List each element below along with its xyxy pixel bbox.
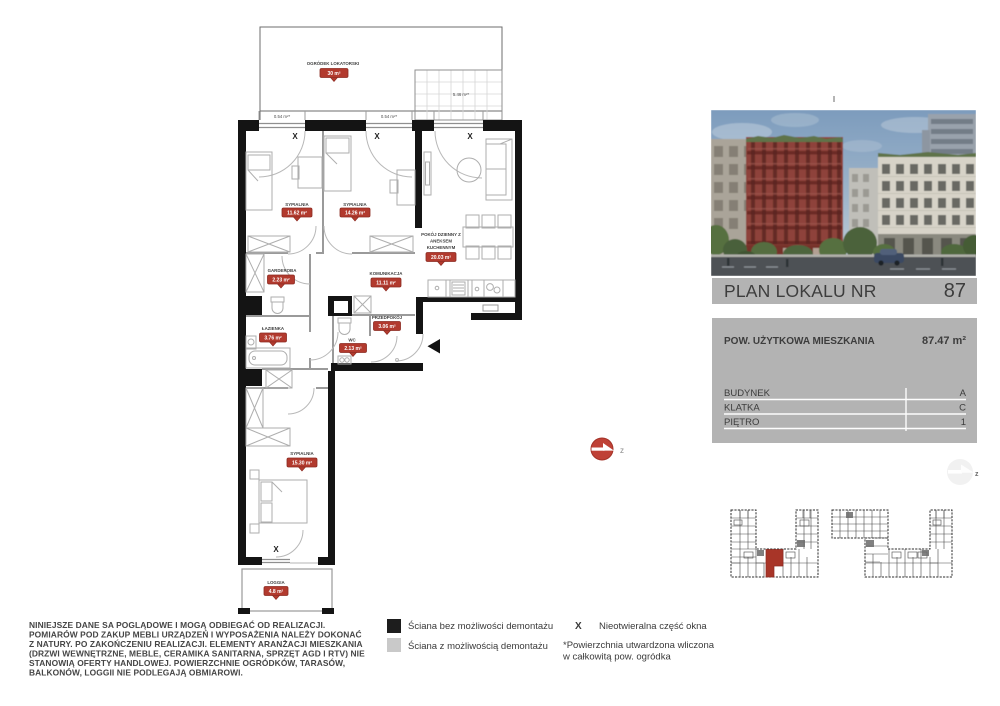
svg-text:SYPIALNIA: SYPIALNIA [343, 202, 367, 207]
svg-text:X: X [273, 545, 279, 554]
svg-text:BUDYNEK: BUDYNEK [724, 388, 771, 399]
svg-text:2.13 m²: 2.13 m² [344, 346, 362, 352]
svg-text:1: 1 [961, 417, 966, 428]
svg-text:2.23 m²: 2.23 m² [272, 278, 290, 284]
svg-text:20.03 m²: 20.03 m² [431, 255, 451, 261]
svg-text:5.46 m²*: 5.46 m²* [453, 92, 470, 97]
svg-text:14.26 m²: 14.26 m² [345, 211, 365, 217]
svg-text:ANEKSEM: ANEKSEM [430, 239, 452, 244]
svg-text:Ściana bez możliwości demontaż: Ściana bez możliwości demontażu [408, 620, 553, 632]
svg-text:KUCHENNYM: KUCHENNYM [427, 245, 456, 250]
svg-text:X: X [467, 132, 473, 141]
svg-text:KOMUNIKACJA: KOMUNIKACJA [370, 271, 404, 276]
svg-text:11.62 m²: 11.62 m² [287, 211, 307, 217]
svg-text:30 m²: 30 m² [327, 71, 340, 77]
svg-text:WC: WC [348, 338, 356, 343]
svg-text:SYPIALNIA: SYPIALNIA [290, 451, 314, 456]
svg-text:X: X [575, 621, 582, 632]
svg-text:z: z [975, 471, 979, 478]
svg-text:POMIARÓW POD ZAKUP MEBLI URZĄD: POMIARÓW POD ZAKUP MEBLI URZĄDZEŃ I WYPO… [29, 629, 362, 640]
svg-text:Ściana z możliwością demontażu: Ściana z możliwością demontażu [408, 640, 548, 652]
svg-text:NINIEJSZE DANE SA POGLĄDOWE I: NINIEJSZE DANE SA POGLĄDOWE I MOGĄ ODBIE… [29, 619, 325, 630]
svg-text:PRZEDPOKÓJ: PRZEDPOKÓJ [372, 315, 403, 320]
svg-text:0.54 m²*: 0.54 m²* [274, 114, 291, 119]
svg-text:X: X [292, 132, 298, 141]
svg-text:POKÓJ DZIENNY Z: POKÓJ DZIENNY Z [421, 232, 461, 237]
svg-text:0.54 m²*: 0.54 m²* [381, 114, 398, 119]
svg-text:87: 87 [944, 280, 966, 302]
svg-text:OGRÓDEK LOKATORSKI: OGRÓDEK LOKATORSKI [307, 61, 360, 66]
svg-text:3.06 m²: 3.06 m² [378, 324, 396, 330]
svg-text:*Powierzchnia utwardzona wlicz: *Powierzchnia utwardzona wliczona [563, 640, 715, 651]
svg-text:LOGGIA: LOGGIA [267, 580, 285, 585]
svg-text:STANOWIĄ OFERTY HANDLOWEJ. POW: STANOWIĄ OFERTY HANDLOWEJ. POWIERZCHNIE … [29, 657, 345, 668]
svg-text:w całkowitą pow. ogródka: w całkowitą pow. ogródka [562, 652, 671, 663]
svg-text:11.11 m²: 11.11 m² [376, 281, 396, 287]
svg-text:Z NATURY. PO ZAKOŃCZENIU REALI: Z NATURY. PO ZAKOŃCZENIU REALIZACJI. ELE… [29, 638, 363, 649]
svg-text:(DRZWI WEWNĘTRZNE, MEBLE, CERA: (DRZWI WEWNĘTRZNE, MEBLE, CERAMIKA SANIT… [29, 649, 365, 659]
svg-text:15.30 m²: 15.30 m² [292, 461, 312, 467]
svg-text:X: X [374, 132, 380, 141]
svg-text:A: A [960, 388, 967, 399]
svg-text:87.47 m²: 87.47 m² [922, 335, 966, 347]
svg-text:PIĘTRO: PIĘTRO [724, 417, 759, 428]
svg-text:4.8 m²: 4.8 m² [269, 589, 284, 595]
svg-text:BALKONÓW, LOGGII NIE PODLEGAJĄ: BALKONÓW, LOGGII NIE PODLEGAJĄ OBMIAROWI… [29, 667, 243, 678]
svg-text:POW. UŻYTKOWA MIESZKANIA: POW. UŻYTKOWA MIESZKANIA [724, 334, 875, 347]
svg-text:SYPIALNIA: SYPIALNIA [285, 202, 309, 207]
svg-text:C: C [959, 403, 966, 414]
svg-text:3.76 m²: 3.76 m² [264, 336, 282, 342]
svg-text:PLAN LOKALU NR: PLAN LOKALU NR [724, 281, 877, 301]
svg-text:z: z [620, 446, 624, 455]
svg-text:Nieotwieralna część okna: Nieotwieralna część okna [599, 621, 707, 632]
svg-text:KLATKA: KLATKA [724, 403, 760, 414]
svg-text:ŁAZIENKA: ŁAZIENKA [262, 326, 285, 331]
svg-text:GARDEROBA: GARDEROBA [268, 268, 298, 273]
